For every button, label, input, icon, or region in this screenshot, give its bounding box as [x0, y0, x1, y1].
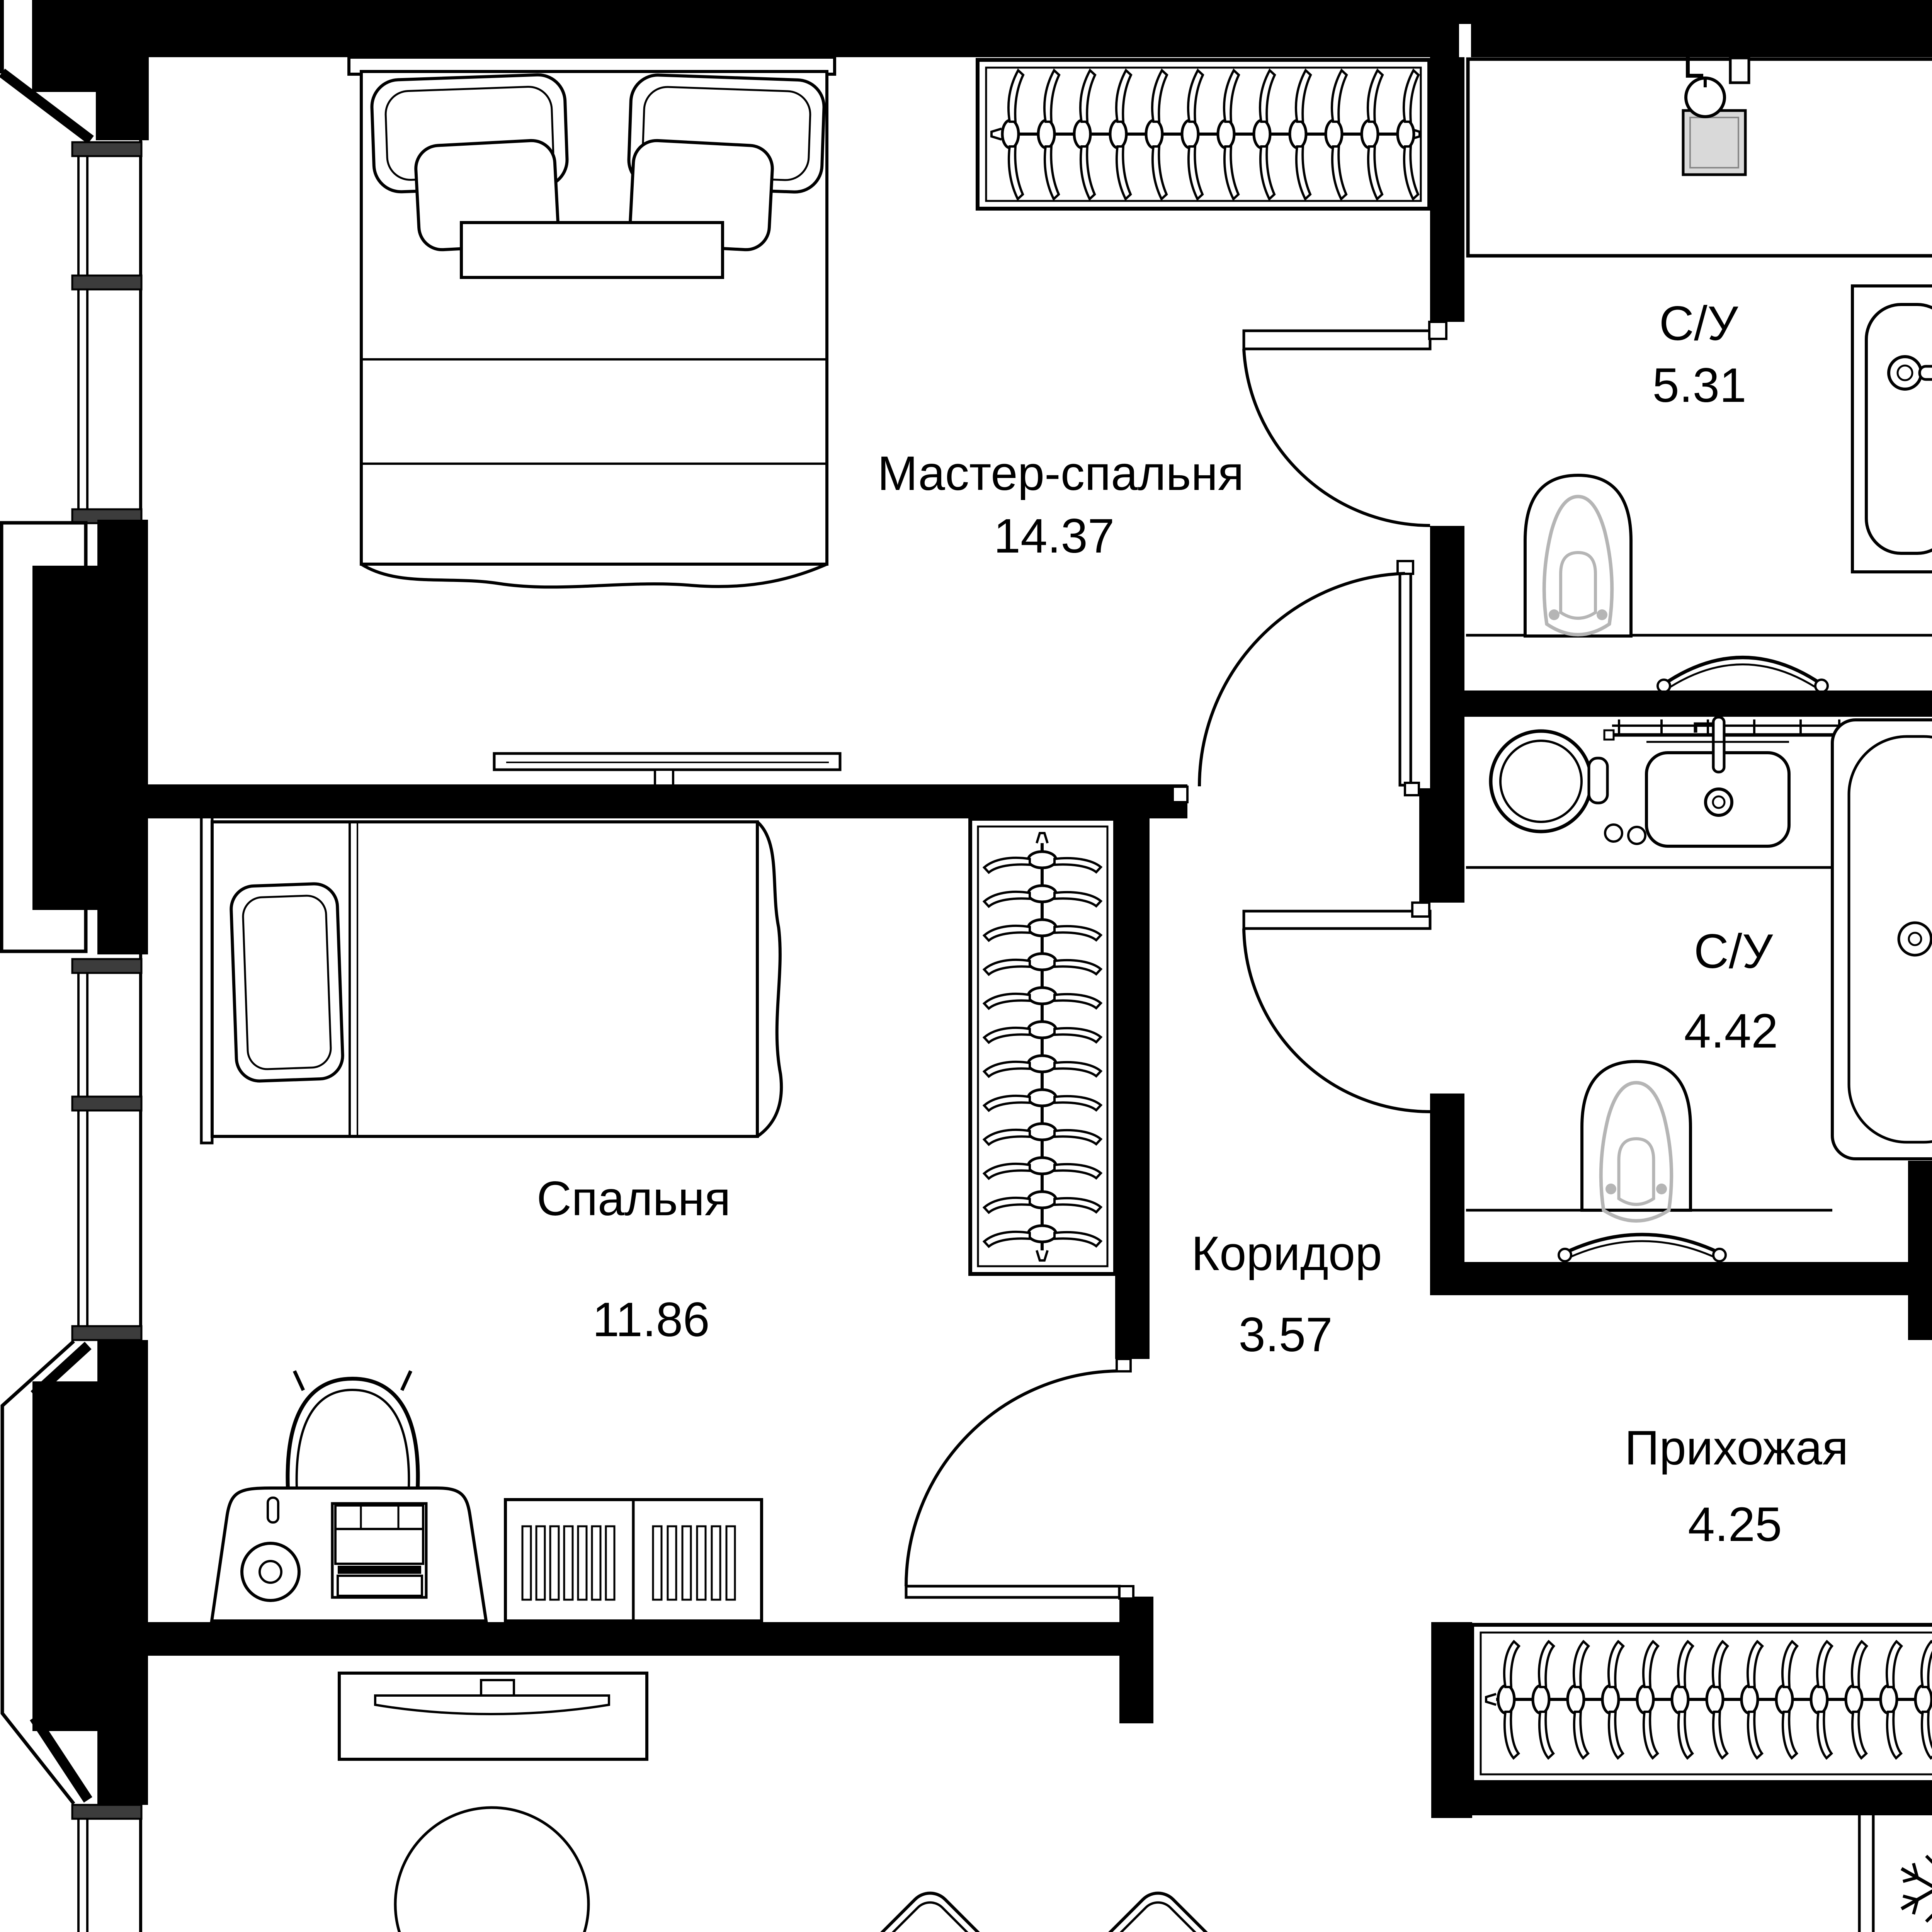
- svg-text:3.57: 3.57: [1238, 1308, 1332, 1362]
- svg-text:4.25: 4.25: [1688, 1498, 1782, 1551]
- svg-text:Прихожая: Прихожая: [1624, 1421, 1848, 1475]
- svg-text:14.37: 14.37: [994, 509, 1115, 563]
- svg-text:Коридор: Коридор: [1191, 1227, 1382, 1281]
- svg-text:Спальня: Спальня: [537, 1172, 731, 1226]
- svg-text:Мастер-спальня: Мастер-спальня: [878, 447, 1244, 500]
- svg-text:5.31: 5.31: [1652, 359, 1746, 412]
- svg-text:4.42: 4.42: [1684, 1004, 1778, 1058]
- svg-text:11.86: 11.86: [592, 1293, 710, 1347]
- svg-text:С/У: С/У: [1694, 925, 1774, 978]
- svg-text:С/У: С/У: [1659, 297, 1739, 350]
